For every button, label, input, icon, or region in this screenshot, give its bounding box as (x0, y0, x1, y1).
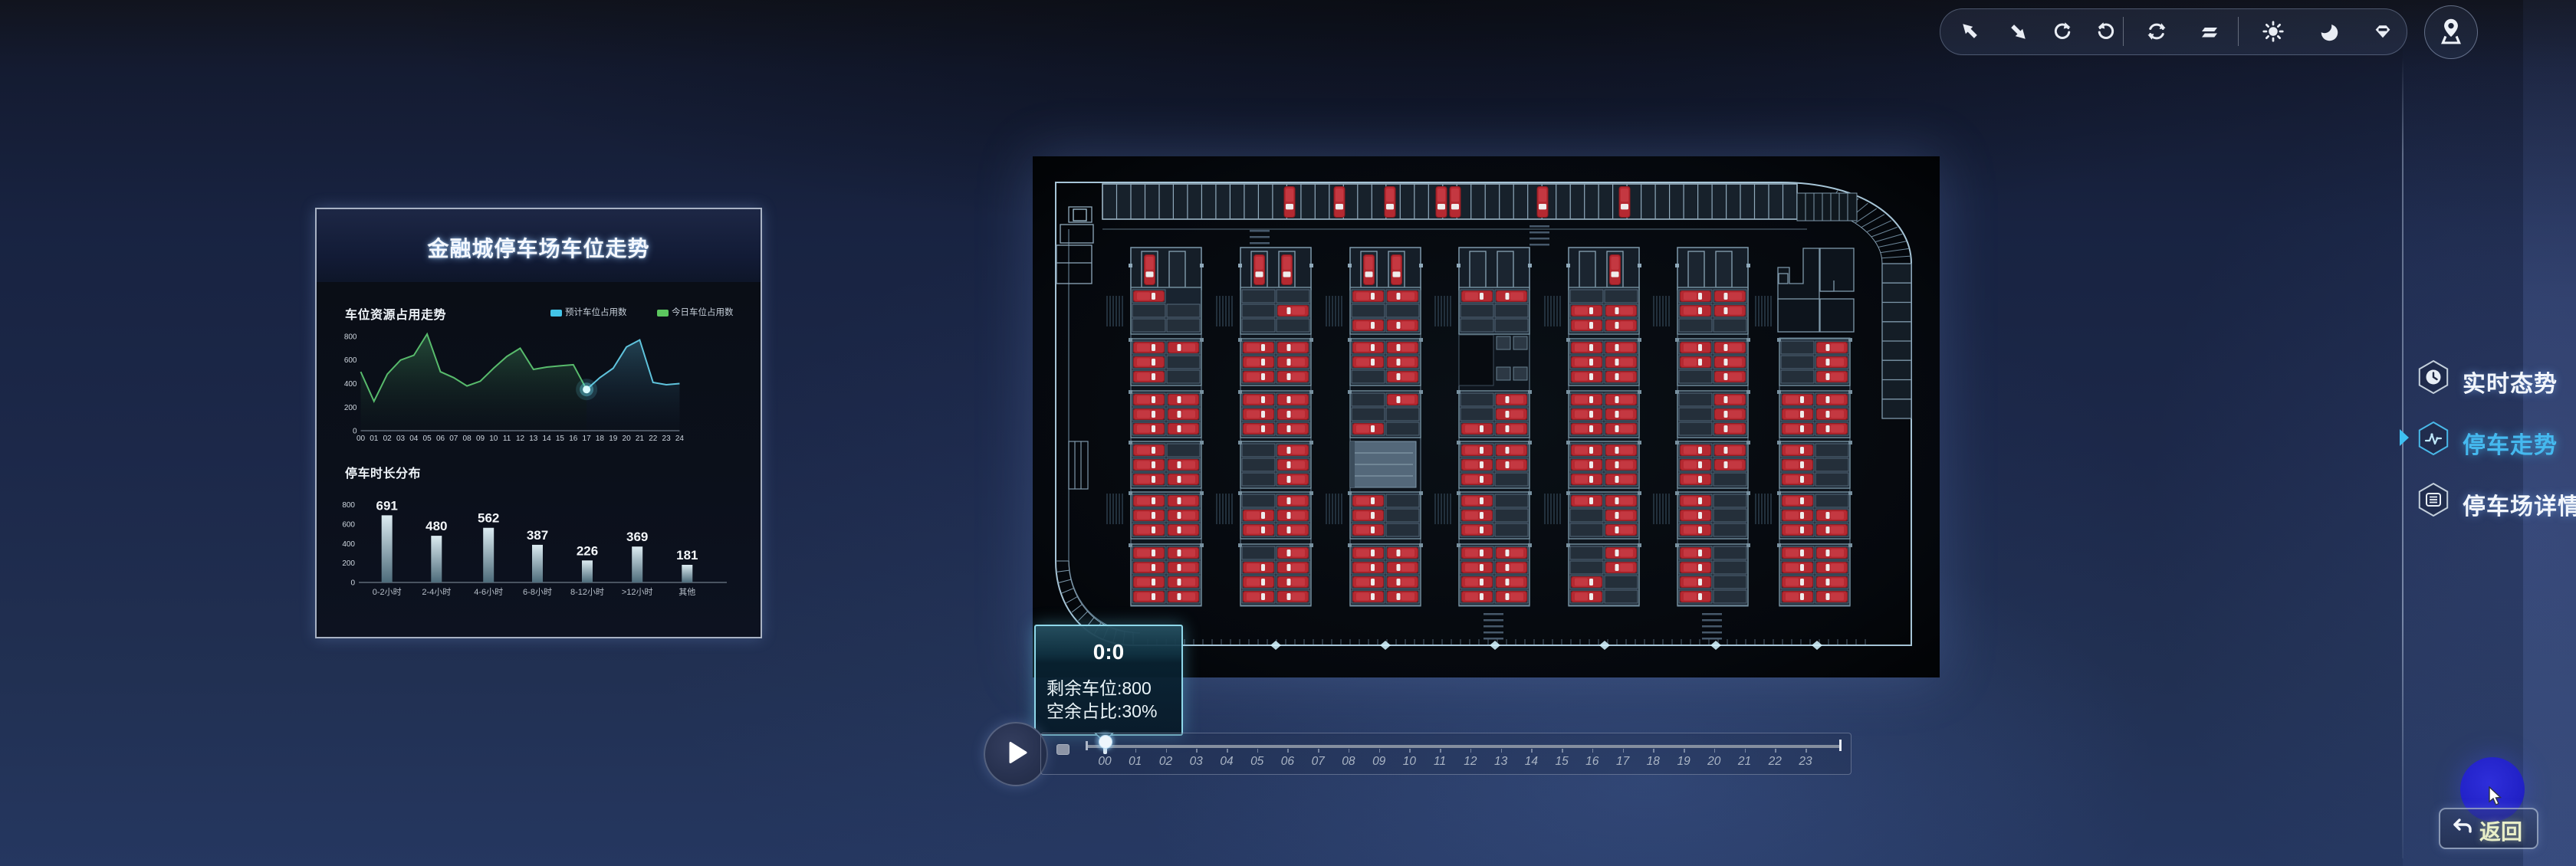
svg-text:20: 20 (623, 435, 632, 443)
svg-text:06: 06 (436, 435, 445, 443)
svg-text:18: 18 (596, 435, 605, 443)
svg-text:600: 600 (344, 356, 357, 365)
svg-text:6-8小时: 6-8小时 (523, 587, 552, 597)
svg-text:02: 02 (383, 435, 393, 443)
svg-text:19: 19 (609, 435, 618, 443)
svg-text:17: 17 (583, 435, 592, 443)
svg-text:05: 05 (423, 435, 432, 443)
svg-text:12: 12 (516, 435, 525, 443)
svg-text:10: 10 (489, 435, 498, 443)
svg-text:400: 400 (342, 540, 355, 549)
svg-text:01: 01 (370, 435, 379, 443)
svg-text:08: 08 (463, 435, 472, 443)
svg-text:4-6小时: 4-6小时 (474, 587, 503, 597)
svg-text:8-12小时: 8-12小时 (570, 587, 604, 597)
svg-text:00: 00 (356, 435, 366, 443)
svg-text:0: 0 (350, 579, 355, 588)
svg-text:23: 23 (662, 435, 672, 443)
svg-text:562: 562 (478, 511, 499, 526)
svg-text:11: 11 (503, 435, 511, 443)
svg-text:24: 24 (675, 435, 685, 443)
svg-text:800: 800 (344, 333, 357, 342)
svg-text:691: 691 (376, 498, 398, 513)
svg-text:0-2小时: 0-2小时 (373, 587, 402, 597)
svg-text:03: 03 (396, 435, 406, 443)
svg-text:2-4小时: 2-4小时 (422, 587, 451, 597)
svg-text:480: 480 (426, 519, 447, 533)
svg-text:其他: 其他 (678, 587, 695, 597)
svg-text:15: 15 (556, 435, 565, 443)
svg-text:>12小时: >12小时 (622, 587, 653, 597)
svg-text:387: 387 (527, 528, 548, 543)
svg-text:181: 181 (676, 548, 698, 563)
svg-text:200: 200 (344, 404, 357, 412)
svg-text:800: 800 (342, 501, 355, 510)
svg-text:09: 09 (476, 435, 485, 443)
svg-text:16: 16 (569, 435, 578, 443)
svg-text:226: 226 (577, 543, 598, 558)
svg-text:04: 04 (409, 435, 419, 443)
svg-text:369: 369 (626, 530, 648, 544)
svg-text:600: 600 (342, 520, 355, 529)
svg-text:21: 21 (636, 435, 645, 443)
svg-text:14: 14 (543, 435, 552, 443)
svg-text:400: 400 (344, 380, 357, 389)
svg-text:07: 07 (449, 435, 458, 443)
svg-text:13: 13 (529, 435, 538, 443)
svg-text:200: 200 (342, 559, 355, 568)
svg-text:22: 22 (649, 435, 658, 443)
